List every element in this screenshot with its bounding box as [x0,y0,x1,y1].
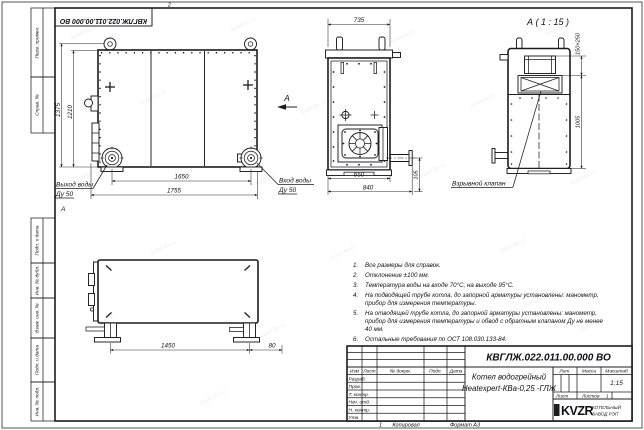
lifting-lug [245,38,257,50]
water-pipe [492,149,508,164]
dim-80: 80 [268,343,276,350]
note-text: На подводящей трубе котла, до запорной а… [365,292,605,309]
dim-650: 650 [354,172,365,179]
scale-label: Масштаб [605,369,628,375]
top-pipe [393,53,401,58]
top-stamp: КВГЛЖ.022.011.00.000 ВО [55,8,152,26]
note-item: 3.Температура воды на входе 70°С, на вых… [350,282,634,290]
note-item: 1.Все размеры для справок. [350,262,634,270]
outlet-label-text: Выход воды [56,181,93,189]
dim-840: 840 [363,185,374,192]
lifting-lug [559,38,565,49]
row-prov: Пров. [349,384,362,390]
dim-735: 735 [354,17,365,24]
inlet-label: Вход воды Ду 50 [257,163,314,194]
dim-1005: 1005 [576,115,582,128]
row-tkontr: Т. контр. [349,392,370,398]
note-text: Все размеры для справок. [365,262,605,270]
lifting-lug [104,38,116,50]
right-foot [230,323,260,342]
margin-field-label: Инв. № подл. [35,387,41,417]
dim-1450: 1450 [161,343,176,350]
note-text: Температура воды на входе 70°С, на выход… [365,282,605,290]
lifting-lug [379,37,385,50]
mass-label: Масса [582,369,597,375]
note-number: 1. [350,262,365,270]
dim-1210: 1210 [67,105,74,120]
lifting-lug [517,38,523,49]
note-number: 3. [350,282,365,290]
outlet-label: Выход воды Ду 50 [55,165,107,198]
note-item: 5.На отводящей трубе котла, до запорной … [350,310,634,335]
pipe-stub [500,55,508,61]
side-view-drawing: 735 650 840 105 [312,14,432,200]
left-flange [89,294,95,306]
product-name-line1: Котел водогрейный [472,373,547,382]
detail-title: А ( 1 : 15 ) [526,17,569,27]
doc-number: КВГЛЖ.022.011.00.000 ВО [486,353,611,364]
technical-notes: 1.Все размеры для справок. 2.Отклонение … [350,262,634,346]
plan-dimensions: 1450 80 [111,343,283,354]
col-izm: Изм [350,369,360,375]
inlet-dn-text: Ду 50 [278,187,297,194]
outlet-dn-text: Ду 50 [55,191,74,198]
margin-field-label: Подп. и дата [35,345,41,375]
note-number: 4. [350,292,365,309]
logo-mark [554,404,560,416]
dim-1375: 1375 [55,103,62,118]
note-text: Отклонение ±100 мм. [365,272,605,280]
company-logo: KVZR [561,404,594,418]
dim-150x250: 150×250 [576,32,582,55]
boiler-body [98,50,257,167]
top-cap [326,50,393,58]
sheets-label: Листов [581,394,600,400]
lit-label: Лит. [558,369,570,375]
col-sign: Подп. [429,369,442,375]
company-name-line1: КОТЕЛЬНЫЙ [592,403,622,410]
section-arrow: А [277,93,297,110]
scale-value: 1:15 [610,380,623,387]
note-item: 2.Отклонение ±100 мм. [350,272,634,280]
inlet-label-text: Вход воды [279,177,311,185]
front-view-drawing: 1375 1210 1650 1755 Выход воды Ду 50 Вхо… [40,28,340,232]
left-foot [86,323,121,342]
plan-view-drawing: 1450 80 [60,250,300,356]
title-block: Изм Лист № докум. Подп. Дата Разраб. Про… [340,340,642,430]
col-doc: № докум. [390,369,411,375]
margin-field-label: Взам. инв. № [35,303,41,333]
row-nachotd: Нач. отд. [349,400,371,406]
side-channel [92,123,99,161]
lifting-lug [337,37,343,50]
dim-105: 105 [414,169,420,179]
row-utv: Утв. [349,415,360,421]
section-arrow-letter: А [283,93,290,103]
dim-1755: 1755 [167,188,182,195]
row-nkontr: Н. контр. [349,408,371,414]
note-number: 5. [350,310,365,335]
left-flange [89,274,95,286]
margin-field-label: Инв. № дубл. [35,266,41,296]
note-number: 2. [350,272,365,280]
boiler-top [98,260,258,323]
top-fold-mark: 2 [167,3,171,9]
valve-label-text: Взрывной клапан [452,180,506,188]
col-list: Лист [362,369,375,375]
company-name-line2: ЗАВОД РЭП [592,412,619,417]
note-text: На отводящей трубе котла, до запорной ар… [365,310,605,335]
dim-1650: 1650 [174,174,189,181]
product-name-line2: Heatexpert-КВа-0,25 -ГЛЖ [462,384,557,393]
note-item: 4.На подводящей трубе котла, до запорной… [350,292,634,309]
col-date: Дата [449,369,463,375]
sheet-label: Лист [555,394,568,400]
drawing-sheet: Перв. примен. Справ. № Подп. и дата Инв.… [0,0,644,430]
burner-flange [338,125,382,162]
top-stamp-number: КВГЛЖ.022.011.00.000 ВО [59,17,147,24]
row-razrab: Разраб. [349,377,366,383]
sheets-value: 1 [606,394,609,400]
detail-view-drawing: А ( 1 : 15 ) [440,12,640,198]
